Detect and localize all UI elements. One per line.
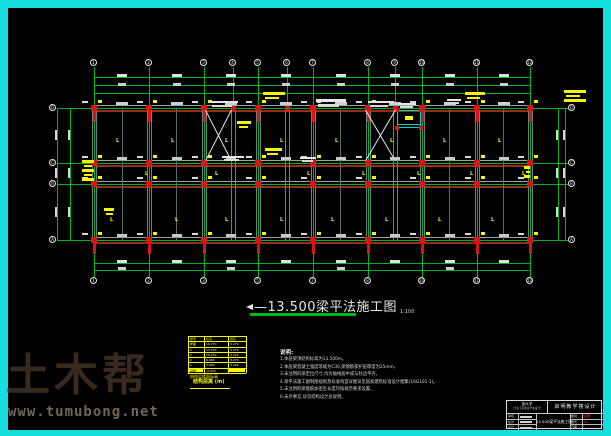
column-square (91, 181, 97, 187)
dimension-text (55, 130, 57, 140)
titleblock-value (520, 421, 532, 423)
beam-annotation: L (280, 138, 283, 144)
beam-annotation (263, 92, 285, 95)
axis-bubble: 5 (254, 277, 261, 284)
beam-label (281, 157, 291, 160)
beam-label (281, 234, 291, 237)
axis-bubble: 8 (364, 59, 371, 66)
legend-cell: 3.270 (230, 358, 239, 362)
beam-annotation (534, 155, 538, 158)
legend-grid-line (188, 336, 246, 337)
beam-annotation: L (225, 138, 228, 144)
titleblock-value: 21 (584, 420, 588, 424)
beam-annotation (262, 155, 266, 158)
dimension-text (301, 233, 307, 235)
beam-line (424, 108, 425, 240)
cad-drawing-viewport: LLLLLLLLLLLLLLLLLLLLLLL11223345567788910… (0, 0, 611, 436)
titleblock-value (520, 416, 532, 418)
axis-bubble: C (568, 159, 575, 166)
beam-annotation (208, 232, 212, 235)
dimension-text (192, 177, 198, 179)
beam-label (499, 234, 509, 237)
dimension-text (118, 267, 126, 270)
note-line: 4.梁平法施工图制图规则及标准构造详图详见国家建筑标准设计图集(16G101-1… (280, 379, 460, 387)
dimension-text (137, 233, 143, 235)
beam-annotation (534, 232, 538, 235)
dimension-text (518, 156, 524, 158)
column-stub (257, 110, 260, 122)
legend-cell: 屋面 (190, 342, 196, 346)
dimension-text (281, 260, 291, 263)
column-stub (203, 242, 206, 254)
beam-label (226, 234, 236, 237)
dimension-text (556, 168, 558, 178)
legend-header: 标高 (206, 337, 212, 341)
axis-bubble: 6 (283, 59, 290, 66)
beam-label (172, 157, 182, 160)
dimension-text (499, 260, 509, 263)
beam-line (311, 108, 312, 240)
beam-annotation: L (385, 217, 388, 223)
dimension-text (563, 168, 565, 178)
column-square (419, 108, 423, 112)
beam-annotation: L (362, 171, 365, 177)
dimension-line (94, 270, 530, 271)
dimension-text (500, 83, 508, 86)
beam-line (285, 108, 286, 240)
beam-annotation (317, 155, 321, 158)
axis-bubble: A (49, 236, 56, 243)
dimension-text (246, 156, 252, 158)
axis-bubble: 10 (418, 277, 425, 284)
dimension-text (356, 177, 362, 179)
legend-caption-underline (190, 388, 230, 389)
dimension-text (246, 101, 252, 103)
note-line: 2.本层梁混凝土强度等级为C30,梁钢筋保护层厚度为25mm。 (280, 364, 460, 372)
beam-annotation (526, 171, 530, 174)
dimension-text (499, 74, 509, 77)
legend-cell: 3.270 (230, 348, 239, 352)
beam-line (231, 108, 232, 240)
annotation-text (368, 101, 394, 103)
beam-annotation (566, 95, 580, 98)
dimension-text (301, 177, 307, 179)
axis-bubble: 7 (309, 59, 316, 66)
storey-elevation-table: 层号标高层高屋面16.7703.270413.5003.270310.2303.… (188, 336, 248, 396)
dimension-text (227, 83, 235, 86)
beam-annotation: L (390, 138, 393, 144)
dimension-text (192, 101, 198, 103)
beam-annotation (534, 176, 538, 179)
beam-label (336, 234, 346, 237)
column-square (419, 126, 423, 130)
dimension-text (410, 177, 416, 179)
annotation-text (398, 103, 416, 105)
beam-line (96, 108, 97, 240)
beam-annotation (153, 155, 157, 158)
dimension-line (57, 108, 58, 240)
beam-annotation (481, 176, 485, 179)
watermark-brand: 土木帮 (6, 350, 150, 402)
legend-cell: 3 (190, 353, 192, 357)
beam-label (171, 102, 183, 105)
beam-line (92, 108, 93, 240)
titleblock-value: 结施 (584, 414, 590, 418)
column-square (527, 181, 533, 187)
dimension-text (68, 130, 70, 140)
watermark-url: www.tumubong.net (8, 404, 159, 420)
annotation-text (449, 102, 459, 104)
dimension-text (192, 156, 198, 158)
legend-cell: 6.960 (206, 358, 215, 362)
beam-line (122, 108, 123, 240)
column-square (365, 181, 371, 187)
beam-annotation: L (331, 217, 334, 223)
beam-annotation: L (145, 171, 148, 177)
dimension-text (356, 233, 362, 235)
column-square (255, 160, 261, 166)
beam-annotation (317, 232, 321, 235)
org-name: 某大学 (507, 402, 547, 407)
beam-annotation: L (110, 217, 113, 223)
column-square (201, 181, 207, 187)
legend-cell: 13.500 (206, 348, 217, 352)
axis-bubble: 1 (90, 59, 97, 66)
beam-label (172, 234, 182, 237)
beam-annotation (98, 100, 102, 103)
dimension-text (55, 168, 57, 178)
column-stub (529, 242, 532, 254)
legend-cell: 2 (190, 358, 192, 362)
beam-annotation (564, 90, 586, 93)
beam-annotation (426, 100, 430, 103)
beam-annotation (82, 160, 94, 163)
dimension-text (390, 260, 400, 263)
legend-highlight (229, 368, 245, 372)
column-square (255, 181, 261, 187)
axis-bubble: 12 (526, 59, 533, 66)
beam-annotation (98, 176, 102, 179)
column-stub (93, 110, 96, 122)
beam-annotation (372, 155, 376, 158)
beam-annotation: L (438, 217, 441, 223)
beam-annotation (262, 232, 266, 235)
beam-annotation (153, 232, 157, 235)
dimension-text (137, 177, 143, 179)
note-line: 5.未注明的梁箍筋加密区长度均按规范要求设置。 (280, 386, 460, 394)
beam-annotation (481, 155, 485, 158)
beam-annotation (372, 176, 376, 179)
axis-bubble: C (49, 159, 56, 166)
beam-annotation (104, 208, 114, 211)
beam-label (390, 234, 400, 237)
beam-line (206, 108, 207, 240)
dimension-text (246, 177, 252, 179)
note-line: 1.本层梁顶结构标高为13.500m。 (280, 356, 460, 364)
beam-annotation: L (215, 171, 218, 177)
titleblock-line (582, 413, 583, 430)
dimension-text (390, 74, 400, 77)
legend-grid-line (246, 336, 247, 373)
sheet-title-block: 某大学(土木工程专业毕业设计)启明教学楼设计13.500梁平法施工图审核图别结施… (506, 400, 602, 429)
column-stub (93, 242, 96, 254)
axis-bubble: 3 (200, 59, 207, 66)
beam-annotation: L (307, 171, 310, 177)
beam-annotation (98, 155, 102, 158)
dimension-text (446, 83, 454, 86)
legend-cell: 基础 (190, 369, 196, 373)
dimension-text (518, 101, 524, 103)
legend-header: 层号 (190, 337, 196, 341)
dimension-line (94, 85, 530, 86)
dimension-line (70, 108, 71, 240)
dimension-text (55, 207, 57, 217)
titleblock-label: 图别 (571, 414, 577, 418)
axis-bubble: 1 (90, 277, 97, 284)
beam-label (280, 102, 292, 105)
annotation-text (302, 160, 313, 162)
column-stub (312, 242, 315, 254)
beam-annotation: L (116, 138, 119, 144)
column-square (474, 160, 480, 166)
legend-cell: 4 (190, 348, 192, 352)
column-stub (257, 242, 260, 254)
axis-bubble: 5 (254, 59, 261, 66)
dimension-text (563, 130, 565, 140)
dimension-text (465, 156, 471, 158)
beam-annotation (524, 166, 530, 169)
legend-cell: 3.690 (206, 363, 215, 367)
annotation-text (224, 159, 239, 161)
dimension-text (556, 207, 558, 217)
dimension-text (301, 101, 307, 103)
axis-bubble: 2 (145, 277, 152, 284)
beam-label (445, 234, 455, 237)
beam-line (532, 108, 533, 240)
dimension-text (117, 74, 127, 77)
beam-annotation (564, 99, 586, 102)
beam-annotation (239, 126, 248, 129)
beam-line (340, 108, 341, 240)
beam-label (499, 157, 509, 160)
column-square (201, 160, 207, 166)
axis-bubble: B (568, 180, 575, 187)
beam-annotation (82, 178, 94, 181)
column-square (419, 160, 425, 166)
axis-bubble: 8 (364, 277, 371, 284)
beam-annotation (153, 176, 157, 179)
axis-bubble: 12 (526, 277, 533, 284)
beam-annotation: L (522, 171, 525, 177)
elevation-arrow-icon (246, 304, 253, 310)
dimension-text (445, 260, 455, 263)
titleblock-label: 设计 (508, 425, 514, 429)
beam-annotation (534, 100, 538, 103)
project-name: 启明教学楼设计 (548, 404, 603, 410)
notes-heading: 说明: (280, 348, 460, 356)
dimension-line (558, 108, 559, 240)
beam-line (315, 108, 316, 240)
titleblock-label: 审核 (508, 414, 514, 418)
beam-annotation (426, 176, 430, 179)
beam-label (336, 157, 346, 160)
legend-cell: 3.270 (230, 342, 239, 346)
beam-annotation: L (498, 138, 501, 144)
beam-line (475, 108, 476, 240)
dimension-text (281, 74, 291, 77)
beam-annotation (153, 100, 157, 103)
legend-cell: 1 (190, 363, 192, 367)
column-stub (529, 110, 532, 122)
beam-line (366, 108, 367, 240)
column-square (310, 181, 316, 187)
dimension-text (410, 156, 416, 158)
dimension-text (246, 233, 252, 235)
beam-annotation: L (491, 217, 494, 223)
beam-annotation (262, 100, 266, 103)
dimension-text (68, 207, 70, 217)
beam-annotation (84, 165, 92, 168)
beam-annotation (467, 97, 480, 100)
column-square (285, 106, 290, 111)
axis-bubble: 11 (473, 59, 480, 66)
beam-annotation (82, 169, 94, 172)
beam-annotation (317, 176, 321, 179)
beam-annotation (426, 232, 430, 235)
notes-block: 说明: 1.本层梁顶结构标高为13.500m。2.本层梁混凝土强度等级为C30,… (280, 348, 460, 402)
annotation-text (318, 104, 339, 107)
legend-caption: 结构层高 (m) (193, 379, 225, 385)
note-line: 3.未注明的梁定位尺寸,均为轴线居中或与柱边平齐。 (280, 371, 460, 379)
beam-label (498, 102, 510, 105)
column-stub (148, 242, 151, 254)
dimension-text (336, 74, 346, 77)
axis-bubble: 4 (229, 59, 236, 66)
axis-bubble: 2 (145, 59, 152, 66)
dimension-text (563, 207, 565, 217)
drawing-name: 13.500梁平法施工图 (536, 413, 570, 430)
beam-annotation (262, 176, 266, 179)
dimension-text (117, 260, 127, 263)
annotation-text (212, 105, 232, 107)
axis-bubble: 9 (391, 59, 398, 66)
beam-annotation (84, 174, 92, 177)
legend-cell: -0.050 (206, 369, 216, 373)
column-square (395, 126, 399, 130)
column-stub (312, 110, 315, 122)
column-stub (421, 242, 424, 254)
notes-lines: 1.本层梁顶结构标高为13.500m。2.本层梁混凝土强度等级为C30,梁钢筋保… (280, 356, 460, 402)
axis-bubble: D (568, 104, 575, 111)
legend-cell: 3.240 (230, 363, 239, 367)
column-square (146, 181, 152, 187)
dimension-line (94, 263, 530, 264)
dimension-text (282, 83, 290, 86)
dimension-text (137, 101, 143, 103)
beam-line (202, 108, 203, 240)
dimension-text (192, 233, 198, 235)
drawing-scale: 1:100 (400, 309, 414, 315)
column-square (146, 160, 152, 166)
dimension-text (336, 260, 346, 263)
beam-line (289, 108, 290, 240)
beam-label (117, 234, 127, 237)
beam-line (235, 108, 236, 240)
dimension-text (391, 83, 399, 86)
beam-line (260, 108, 261, 240)
beam-label (117, 157, 127, 160)
dimension-text (356, 101, 362, 103)
legend-header: 层高 (230, 337, 236, 341)
beam-annotation (267, 153, 278, 156)
titleblock-value (520, 427, 532, 429)
dimension-text (82, 156, 88, 158)
dimension-text (172, 260, 182, 263)
dimension-text (356, 156, 362, 158)
column-square (474, 181, 480, 187)
beam-annotation (481, 232, 485, 235)
dimension-text (226, 74, 236, 77)
dimension-text (82, 101, 88, 103)
beam-line (479, 108, 480, 240)
column-square (419, 181, 425, 187)
dimension-text (173, 83, 181, 86)
axis-bubble: 11 (473, 277, 480, 284)
dimension-text (465, 177, 471, 179)
beam-line (528, 108, 529, 240)
legend-cell: 10.230 (206, 353, 217, 357)
beam-annotation: L (175, 217, 178, 223)
title-underline (250, 313, 356, 316)
beam-line (151, 108, 152, 240)
titleblock-label: 校对 (508, 420, 514, 424)
column-stub (476, 242, 479, 254)
column-stub (367, 242, 370, 254)
dimension-text (410, 233, 416, 235)
annotation-text (210, 101, 238, 103)
beam-label (445, 157, 455, 160)
beam-annotation (106, 213, 113, 216)
beam-annotation: L (280, 217, 283, 223)
beam-annotation (465, 92, 485, 95)
axis-bubble: 7 (309, 277, 316, 284)
beam-line (503, 108, 504, 240)
column-stub (148, 110, 151, 122)
dimension-line (94, 77, 530, 78)
dimension-text (518, 233, 524, 235)
annotation-text (222, 156, 244, 158)
dimension-text (465, 233, 471, 235)
beam-annotation (265, 97, 279, 100)
beam-annotation (426, 155, 430, 158)
beam-annotation (98, 232, 102, 235)
dimension-text (82, 233, 88, 235)
axis-bubble: B (49, 180, 56, 187)
titleblock-label: 日期 (571, 425, 577, 429)
titleblock-label: 图号 (571, 420, 577, 424)
annotation-text (400, 106, 413, 108)
beam-annotation (372, 232, 376, 235)
drawing-title-block: —13.500梁平法施工图1:100 (246, 295, 414, 319)
dimension-text (337, 267, 345, 270)
beam-line (370, 108, 371, 240)
beam-line (449, 108, 450, 240)
dimension-text (68, 168, 70, 178)
beam-line (256, 108, 257, 240)
beam-line (393, 108, 394, 240)
annotation-text (370, 105, 388, 107)
beam-annotation (265, 148, 282, 151)
